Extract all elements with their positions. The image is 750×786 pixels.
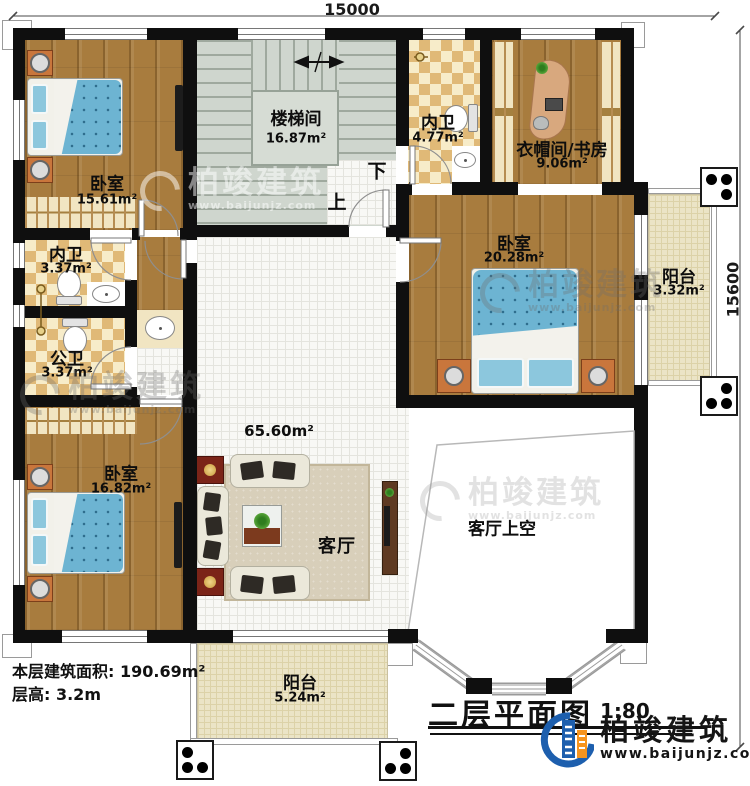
room-area-bedroom-topleft: 15.61m²: [77, 193, 137, 208]
sofa: [197, 486, 229, 566]
plant: [385, 488, 394, 497]
pillow: [31, 120, 48, 150]
wall: [13, 395, 140, 407]
wall: [396, 184, 409, 241]
side-table: [196, 456, 224, 484]
wardrobe: [25, 408, 137, 434]
wall: [183, 395, 197, 643]
wall: [13, 306, 137, 318]
column: [176, 740, 214, 780]
room-area-balcony-bottom: 5.24m²: [274, 691, 325, 706]
nightstand: [27, 50, 53, 76]
stair-down-label: 下: [367, 157, 386, 184]
plant: [536, 62, 548, 74]
stair-treads: [339, 40, 396, 158]
window: [13, 100, 25, 160]
wall: [396, 282, 409, 407]
railing: [711, 188, 717, 386]
room-area-stairwell: 16.87m²: [266, 132, 326, 147]
wall: [480, 28, 492, 184]
brand-website: www.baijunjz.com: [600, 745, 750, 765]
window: [423, 28, 465, 40]
brand-logo-icon: [540, 710, 594, 770]
dimension-right: 15600: [724, 250, 743, 330]
pilaster: [386, 643, 413, 666]
window: [238, 28, 325, 40]
bay-window: [388, 629, 636, 694]
toilet-tank: [468, 104, 478, 132]
nightstand: [27, 576, 53, 602]
watermark-logo-icon: [412, 472, 468, 528]
room-label-living-void: 客厅上空: [468, 515, 536, 540]
window: [65, 28, 147, 40]
nightstand: [27, 464, 53, 490]
railing: [190, 738, 398, 745]
watermark-text: 柏竣建筑: [468, 478, 604, 509]
wall: [183, 263, 197, 395]
toilet-tank: [56, 296, 82, 305]
wall: [452, 182, 518, 195]
wall: [180, 228, 197, 240]
room-area-bath-mid: 3.37m²: [40, 262, 91, 277]
bath-lobby-tile: [137, 348, 183, 395]
column: [700, 167, 738, 207]
vestibule-floor: [137, 237, 183, 310]
computer-monitor: [545, 98, 563, 111]
window: [634, 300, 648, 385]
column: [379, 741, 417, 781]
room-area-bath-top: 4.77m²: [412, 131, 463, 146]
sliding-door: [233, 630, 390, 643]
stair-treads: [251, 40, 339, 90]
wall: [634, 408, 648, 643]
room-area-bedroom-botleft: 16.82m²: [91, 482, 151, 497]
pillow: [527, 358, 574, 388]
wall: [197, 630, 233, 643]
balcony-door: [634, 215, 648, 275]
wall: [13, 228, 90, 240]
cloak-wardrobe: [600, 42, 620, 182]
floor-plan: 15000 15600 卧室 15.61m² 楼梯间 16.87m² 内卫 4.…: [0, 0, 750, 786]
room-label-bedroom-topleft: 卧室: [90, 170, 124, 195]
chair: [533, 116, 549, 130]
column: [700, 376, 738, 416]
pillow: [477, 358, 524, 388]
window: [521, 28, 595, 40]
pillow: [31, 534, 48, 566]
void-outline: [408, 431, 634, 687]
wall: [132, 228, 140, 240]
window: [13, 243, 25, 268]
window: [62, 630, 147, 643]
floor-height-note: 层高: 3.2m: [12, 681, 101, 705]
wall: [183, 28, 197, 237]
cloak-wardrobe: [493, 42, 513, 182]
room-area-balcony-right: 3.32m²: [653, 284, 704, 299]
stair-up-label: 上: [327, 188, 346, 215]
dimension-top: 15000: [312, 0, 392, 19]
tv: [174, 502, 182, 568]
basin: [145, 316, 175, 340]
living-tile: [197, 237, 396, 407]
nightstand: [581, 359, 615, 393]
pillow: [31, 498, 48, 530]
tv: [384, 506, 390, 546]
room-area-bath-public: 3.37m²: [41, 366, 92, 381]
room-area-living: 65.60m²: [244, 422, 314, 440]
room-label-stairwell: 楼梯间: [271, 105, 322, 130]
basin: [92, 285, 120, 303]
plant: [254, 513, 270, 529]
sofa: [230, 566, 310, 600]
wall: [396, 28, 409, 146]
brand-name: 柏竣建筑: [600, 716, 750, 745]
stair-treads: [197, 40, 251, 225]
wall: [634, 275, 648, 300]
wall: [621, 28, 634, 195]
side-table: [196, 568, 224, 596]
floor-area-note: 本层建筑面积: 190.69m²: [12, 658, 205, 682]
room-label-living: 客厅: [318, 532, 356, 558]
stair-treads: [251, 166, 339, 225]
wall: [409, 182, 412, 195]
basin: [454, 152, 476, 168]
wall: [197, 225, 349, 237]
window: [13, 305, 25, 327]
pillow: [31, 84, 48, 114]
brand-logo: 柏竣建筑 www.baijunjz.com: [540, 710, 750, 770]
pilaster: [620, 641, 647, 664]
nightstand: [437, 359, 471, 393]
room-area-bedroom-right: 20.28m²: [484, 251, 544, 266]
coffee-table-shelf: [244, 528, 280, 544]
room-area-cloak-study: 9.06m²: [536, 157, 587, 172]
wall: [386, 225, 396, 237]
wall: [396, 395, 648, 408]
nightstand: [27, 157, 53, 183]
tv: [175, 85, 183, 151]
window: [13, 480, 25, 585]
sofa: [230, 454, 310, 488]
wall: [634, 182, 648, 215]
